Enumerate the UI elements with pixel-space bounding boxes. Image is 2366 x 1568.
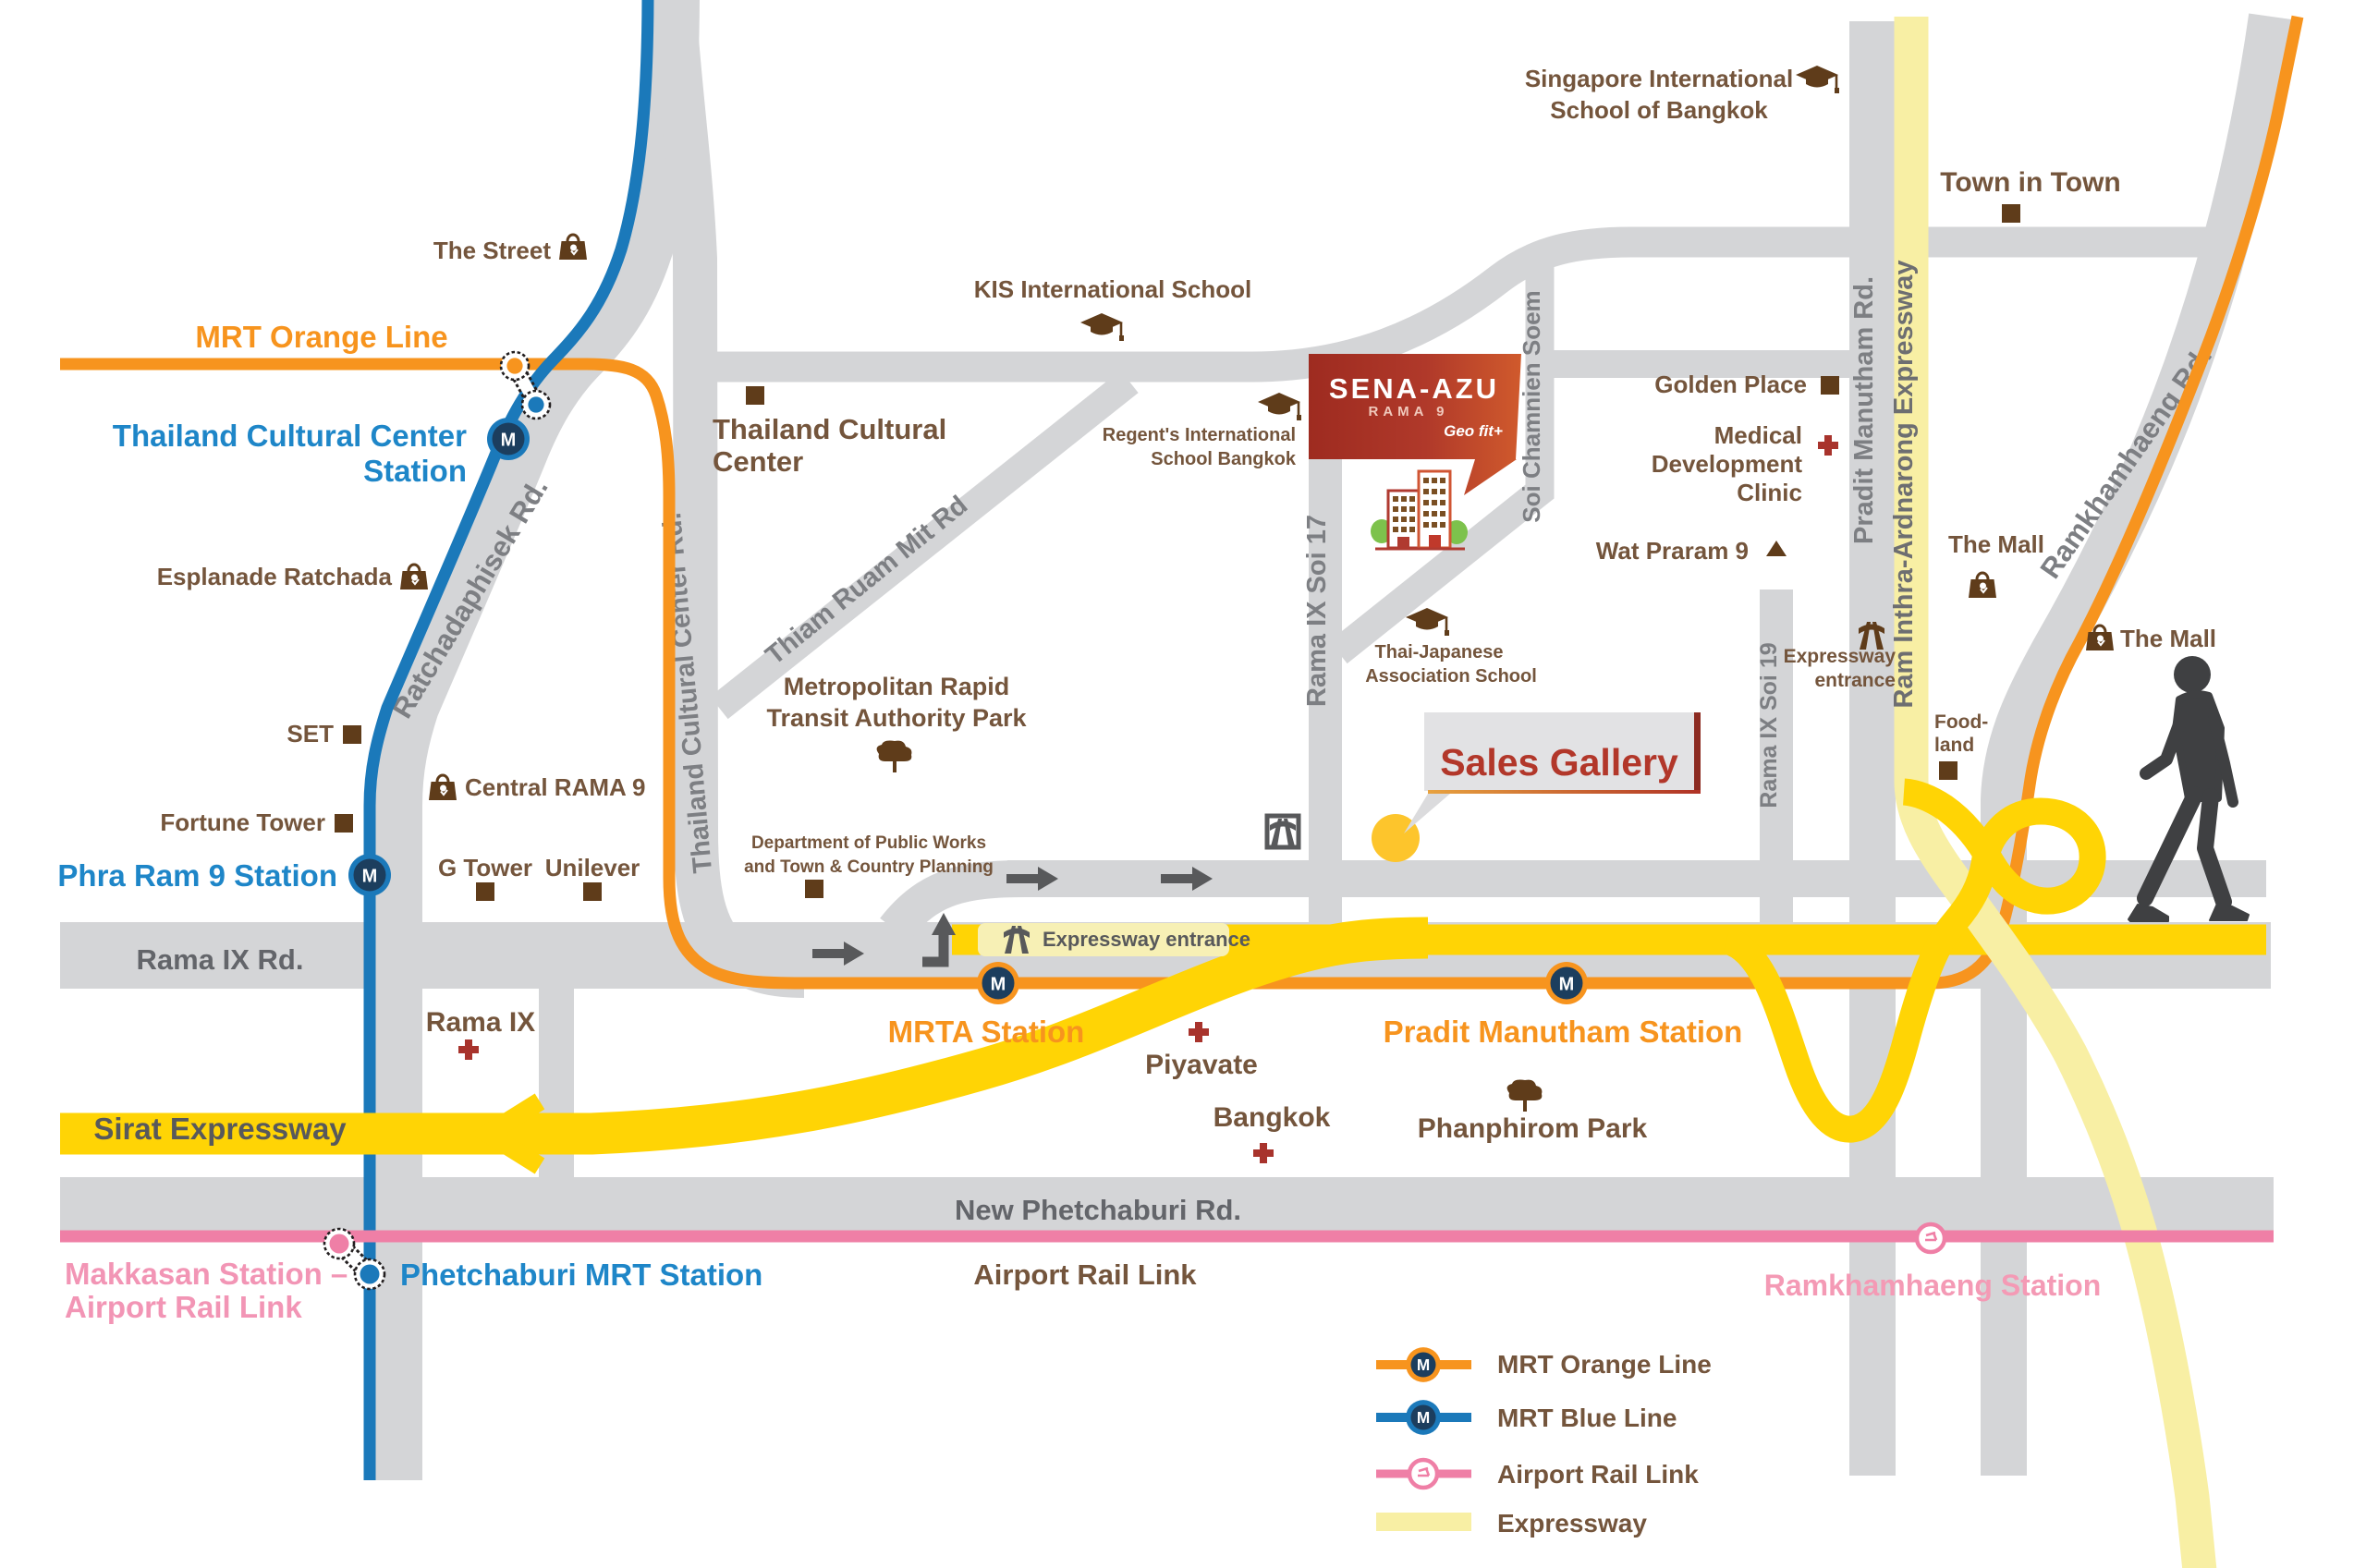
svg-text:The Street: The Street [433, 237, 551, 264]
svg-text:Phetchaburi MRT Station: Phetchaburi MRT Station [400, 1258, 762, 1292]
svg-text:land: land [1934, 735, 1974, 756]
svg-text:Geo fit+: Geo fit+ [1444, 422, 1503, 440]
svg-text:Wat Praram 9: Wat Praram 9 [1596, 537, 1749, 565]
svg-text:Development: Development [1652, 450, 1803, 478]
svg-text:Thailand Cultural: Thailand Cultural [713, 413, 946, 445]
svg-text:School Bangkok: School Bangkok [1151, 449, 1297, 469]
svg-text:Pradit Manutham Station: Pradit Manutham Station [1384, 1015, 1743, 1049]
svg-text:Station: Station [363, 454, 467, 488]
svg-text:G Tower: G Tower [438, 854, 532, 881]
svg-text:Association School: Association School [1365, 666, 1537, 687]
svg-text:SENA-AZU: SENA-AZU [1329, 372, 1499, 405]
svg-text:Expressway: Expressway [1497, 1509, 1647, 1538]
svg-text:Medical: Medical [1714, 421, 1802, 449]
svg-text:M: M [1417, 1355, 1430, 1374]
svg-text:Makkasan Station –: Makkasan Station – [65, 1257, 348, 1291]
svg-text:Thai-Japanese: Thai-Japanese [1375, 642, 1504, 662]
svg-text:Ram Inthra-Ardnarong Expresswa: Ram Inthra-Ardnarong Expressway [1889, 260, 1919, 708]
svg-text:Thailand Cultural Center: Thailand Cultural Center [113, 419, 467, 453]
svg-text:Rama IX Soi 19: Rama IX Soi 19 [1756, 642, 1782, 808]
svg-text:MRT Orange Line: MRT Orange Line [1497, 1350, 1712, 1379]
svg-text:and Town & Country Planning: and Town & Country Planning [744, 857, 994, 877]
svg-text:Phra Ram 9 Station: Phra Ram 9 Station [57, 858, 337, 893]
svg-text:Phanphirom Park: Phanphirom Park [1418, 1113, 1648, 1144]
svg-text:Expressway: Expressway [1784, 646, 1896, 667]
svg-text:Ramkhamhaeng Station: Ramkhamhaeng Station [1764, 1269, 2102, 1302]
svg-text:Transit Authority Park: Transit Authority Park [766, 704, 1027, 732]
svg-text:Rama IX: Rama IX [426, 1007, 535, 1038]
svg-text:Department of Public Works: Department of Public Works [751, 833, 986, 853]
svg-text:MRT Orange Line: MRT Orange Line [195, 320, 447, 354]
svg-text:Rama IX Rd.: Rama IX Rd. [137, 943, 304, 976]
svg-text:Bangkok: Bangkok [1213, 1102, 1331, 1133]
svg-text:Golden Place: Golden Place [1654, 371, 1807, 398]
svg-text:SET: SET [287, 720, 334, 748]
svg-text:MRTA Station: MRTA Station [888, 1015, 1085, 1049]
svg-text:entrance: entrance [1814, 670, 1896, 691]
svg-text:Expressway entrance: Expressway entrance [1043, 928, 1250, 951]
svg-text:Metropolitan Rapid: Metropolitan Rapid [784, 673, 1010, 700]
svg-text:The Mall: The Mall [2120, 625, 2216, 652]
svg-text:Soi Chamnien Soem: Soi Chamnien Soem [1518, 290, 1545, 522]
svg-text:The Mall: The Mall [1948, 530, 2044, 558]
svg-text:Town in Town: Town in Town [1940, 167, 2121, 198]
svg-text:KIS International School: KIS International School [974, 275, 1251, 303]
svg-text:Central RAMA 9: Central RAMA 9 [465, 773, 646, 801]
svg-text:Food-: Food- [1934, 711, 1988, 733]
svg-text:Sirat Expressway: Sirat Expressway [93, 1112, 347, 1146]
svg-text:New Phetchaburi Rd.: New Phetchaburi Rd. [955, 1194, 1241, 1226]
svg-text:Clinic: Clinic [1737, 479, 1802, 506]
svg-text:MRT Blue Line: MRT Blue Line [1497, 1404, 1677, 1432]
svg-text:Fortune Tower: Fortune Tower [160, 808, 325, 836]
svg-text:Center: Center [713, 445, 803, 478]
svg-text:Esplanade Ratchada: Esplanade Ratchada [157, 563, 393, 590]
svg-text:Rama IX Soi 17: Rama IX Soi 17 [1302, 515, 1332, 707]
svg-text:Sales Gallery: Sales Gallery [1440, 741, 1678, 784]
svg-text:Airport Rail Link: Airport Rail Link [1497, 1460, 1699, 1489]
svg-text:Airport Rail Link: Airport Rail Link [973, 1258, 1197, 1291]
svg-text:RAMA 9: RAMA 9 [1369, 404, 1449, 419]
svg-text:Piyavate: Piyavate [1145, 1050, 1258, 1080]
svg-text:School of Bangkok: School of Bangkok [1550, 96, 1768, 124]
svg-text:Pradit Manutham Rd.: Pradit Manutham Rd. [1849, 276, 1879, 544]
svg-text:Unilever: Unilever [545, 854, 640, 881]
svg-text:Airport Rail Link: Airport Rail Link [65, 1290, 302, 1324]
svg-text:M: M [1417, 1408, 1430, 1427]
svg-text:Singapore International: Singapore International [1525, 65, 1793, 92]
svg-text:Regent's International: Regent's International [1103, 425, 1296, 445]
